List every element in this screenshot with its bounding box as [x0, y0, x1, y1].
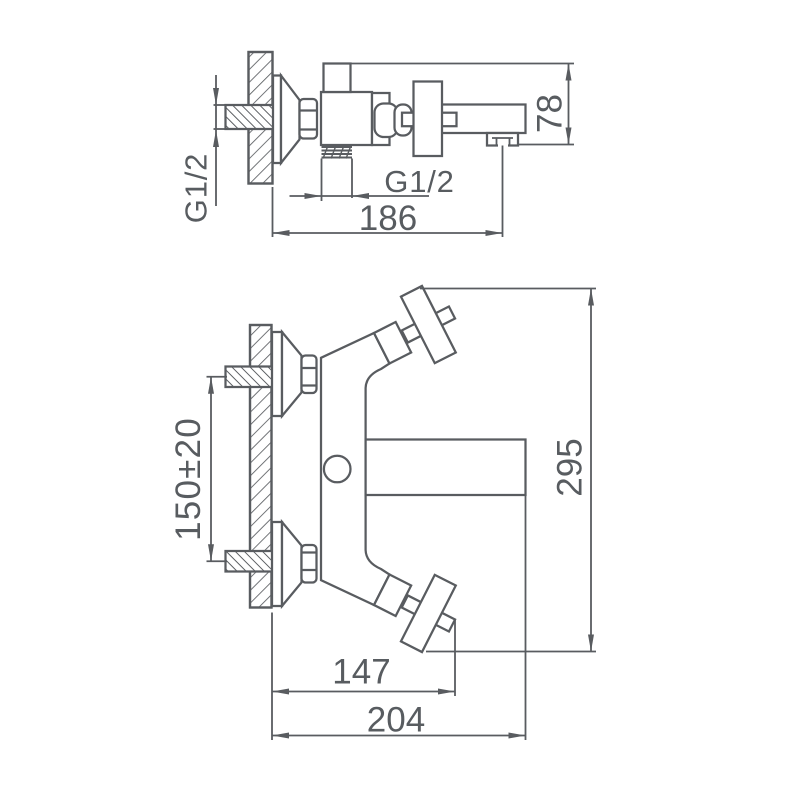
- svg-text:204: 204: [367, 701, 425, 740]
- svg-text:78: 78: [531, 94, 570, 133]
- svg-text:G1/2: G1/2: [179, 153, 214, 223]
- svg-text:147: 147: [332, 653, 390, 692]
- svg-text:150±20: 150±20: [169, 417, 208, 541]
- svg-text:295: 295: [551, 438, 590, 496]
- svg-text:G1/2: G1/2: [384, 164, 454, 199]
- svg-text:186: 186: [359, 199, 417, 238]
